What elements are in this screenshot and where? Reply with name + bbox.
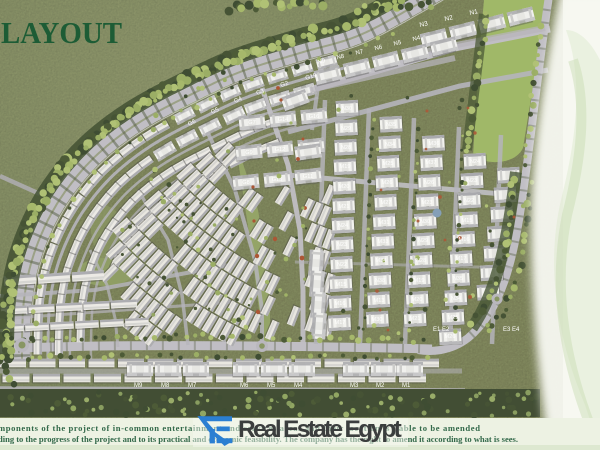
svg-text:Real Estate Egypt: Real Estate Egypt (238, 416, 402, 443)
svg-text:LAYOUT: LAYOUT (1, 16, 122, 50)
